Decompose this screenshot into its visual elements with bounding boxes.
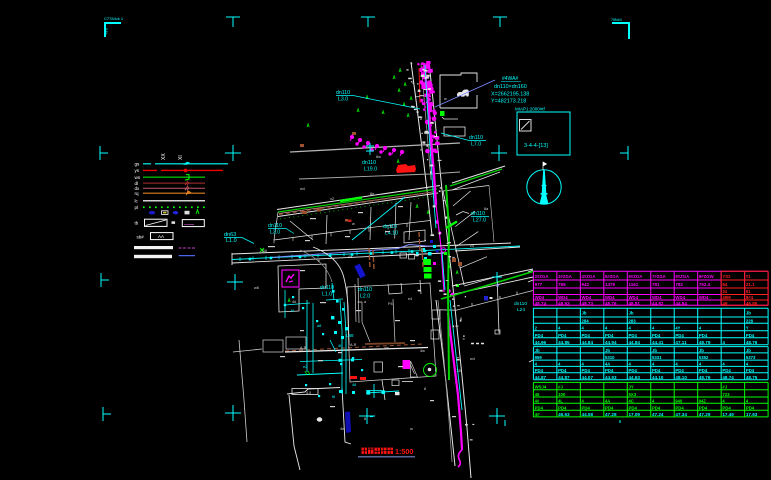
svg-text:PD4: PD4 [675, 368, 684, 373]
svg-text:48.81: 48.81 [628, 301, 640, 306]
svg-text:48.74: 48.74 [722, 375, 734, 380]
svg-text:17.49: 17.49 [722, 412, 734, 417]
svg-text:47.24: 47.24 [652, 412, 664, 417]
svg-text:Jb: Jb [746, 348, 751, 353]
svg-text:48.76: 48.76 [746, 340, 758, 345]
svg-text:PD4: PD4 [652, 333, 661, 338]
svg-text:17.63: 17.63 [746, 412, 758, 417]
svg-text:283: 283 [628, 318, 636, 323]
svg-text:PD4: PD4 [605, 406, 614, 411]
svg-text:48.93: 48.93 [558, 301, 570, 306]
svg-text:WD4: WD4 [582, 295, 592, 300]
svg-text:L3.0: L3.0 [270, 229, 280, 235]
svg-text:MIAP1:2000#tf: MIAP1:2000#tf [515, 107, 546, 112]
svg-text:w: w [444, 97, 447, 101]
svg-text:48.74: 48.74 [535, 301, 547, 306]
svg-text:765: 765 [558, 282, 566, 287]
svg-text:48.10: 48.10 [675, 375, 687, 380]
svg-text:PD4: PD4 [582, 406, 591, 411]
svg-text:17.09: 17.09 [628, 412, 640, 417]
svg-text:8w: 8w [376, 155, 381, 159]
svg-text:AA: AA [158, 234, 164, 239]
svg-text:tb: tb [135, 221, 139, 226]
svg-text:84: 84 [722, 282, 728, 287]
svg-text:4C: 4C [628, 399, 633, 404]
svg-text:#J: #J [722, 384, 727, 389]
svg-text:rq: rq [135, 191, 140, 196]
svg-text:x2: x2 [330, 197, 334, 201]
svg-text:ws: ws [135, 175, 141, 180]
svg-text:752.4: 752.4 [699, 282, 711, 287]
svg-text:8: 8 [364, 417, 366, 421]
svg-text:49: 49 [722, 301, 728, 306]
svg-text:48: 48 [352, 383, 356, 387]
svg-text:977: 977 [535, 282, 543, 287]
svg-text:Jb: Jb [652, 348, 657, 353]
svg-text:dn110: dn110 [358, 287, 372, 293]
svg-text:4L: 4L [558, 399, 563, 404]
svg-text:44.07: 44.07 [582, 375, 594, 380]
svg-text:e4: e4 [408, 297, 412, 301]
svg-text:228: 228 [746, 318, 754, 323]
svg-text:4#ZGA: 4#ZGA [582, 274, 596, 279]
svg-text:44.84: 44.84 [675, 301, 687, 306]
svg-text:XI: XI [178, 155, 184, 160]
svg-text:49M: 49M [722, 295, 731, 300]
svg-text:PD4: PD4 [722, 406, 731, 411]
svg-text:PD4: PD4 [722, 368, 731, 373]
svg-text:6#ZGA: 6#ZGA [628, 274, 642, 279]
svg-text:WSJ4: WSJ4 [535, 384, 547, 389]
svg-text:8#ZGA: 8#ZGA [675, 274, 689, 279]
svg-text:81: 81 [746, 289, 751, 294]
svg-text:1479: 1479 [605, 282, 616, 287]
svg-text:1:500: 1:500 [395, 447, 413, 456]
svg-text:WD4: WD4 [699, 295, 709, 300]
svg-text:ys: ys [135, 168, 140, 173]
svg-text:PD4: PD4 [628, 368, 637, 373]
svg-text:YS2: YS2 [722, 274, 731, 279]
svg-text:Jb: Jb [535, 348, 540, 353]
svg-text:e2: e2 [303, 365, 307, 369]
svg-text:C7784vk.1: C7784vk.1 [104, 16, 124, 21]
svg-text:#1: #1 [746, 274, 751, 279]
svg-text:47.11: 47.11 [675, 340, 687, 345]
svg-text:dn110: dn110 [320, 285, 334, 291]
svg-text:8: 8 [390, 225, 392, 229]
svg-text:Jb: Jb [605, 348, 610, 353]
svg-text:dn110: dn110 [471, 211, 485, 217]
svg-text:8: 8 [460, 317, 462, 321]
svg-text:Y=482173.218: Y=482173.218 [491, 99, 526, 105]
svg-text:dn110: dn110 [469, 135, 483, 141]
svg-text:4: 4 [722, 340, 725, 345]
svg-text:9#ZGW: 9#ZGW [699, 274, 715, 279]
svg-text:L1.0: L1.0 [322, 291, 332, 297]
svg-text:782: 782 [675, 282, 683, 287]
svg-text:47.34: 47.34 [675, 412, 687, 417]
svg-text:Jb: Jb [699, 348, 704, 353]
svg-text:w: w [352, 222, 355, 226]
svg-text:PD4: PD4 [558, 333, 567, 338]
svg-text:L19.0: L19.0 [364, 166, 377, 172]
svg-text:f4: f4 [291, 309, 294, 313]
svg-text:L2.0: L2.0 [360, 293, 370, 299]
svg-text:dn110: dn110 [268, 223, 282, 229]
svg-text:PD4: PD4 [652, 406, 661, 411]
svg-text:WD4: WD4 [628, 295, 638, 300]
svg-text:Jb: Jb [746, 311, 751, 316]
svg-text:#4WA#: #4WA# [502, 76, 518, 82]
svg-text:PD4: PD4 [675, 406, 684, 411]
svg-text:3-4-4-[13]: 3-4-4-[13] [524, 143, 548, 149]
svg-text:44.94: 44.94 [605, 340, 617, 345]
svg-text:44.41: 44.41 [652, 340, 664, 345]
svg-text:L7.0: L7.0 [471, 141, 481, 147]
svg-text:G#: G# [262, 249, 268, 253]
svg-text:PD4: PD4 [652, 368, 661, 373]
svg-text:5X3: 5X3 [628, 392, 636, 397]
svg-text:PD4: PD4 [675, 333, 684, 338]
svg-text:Jb: Jb [628, 311, 633, 316]
svg-text:WD4: WD4 [675, 295, 685, 300]
svg-text:PD4: PD4 [746, 406, 755, 411]
svg-text:PD4: PD4 [699, 406, 708, 411]
svg-text:gs: gs [135, 162, 141, 167]
svg-text:4: 4 [412, 81, 414, 85]
svg-text:4A: 4A [605, 362, 610, 367]
svg-text:8#4: 8#4 [746, 295, 754, 300]
svg-text:4w: 4w [420, 349, 425, 353]
svg-text:4Y: 4Y [675, 326, 680, 331]
svg-text:f8: f8 [332, 395, 335, 399]
svg-text:44.87: 44.87 [535, 375, 547, 380]
svg-text:A.R: A.R [350, 343, 357, 347]
svg-text:dn110: dn110 [362, 160, 376, 166]
svg-text:8: 8 [420, 117, 422, 121]
svg-text:959: 959 [535, 355, 543, 360]
svg-text:5310: 5310 [605, 355, 615, 360]
svg-text:L27.0: L27.0 [473, 217, 486, 223]
svg-text:723: 723 [722, 392, 730, 397]
svg-text:48.79: 48.79 [699, 340, 711, 345]
svg-text:44.84: 44.84 [582, 340, 594, 345]
svg-text:44.63: 44.63 [628, 375, 640, 380]
svg-text:PD4: PD4 [582, 333, 591, 338]
svg-text:WD4: WD4 [605, 295, 615, 300]
svg-text:e: e [318, 259, 320, 263]
svg-text:8: 8 [424, 387, 426, 391]
svg-text:PD4: PD4 [558, 368, 567, 373]
svg-text:4#: 4# [535, 412, 541, 417]
svg-text:44.85: 44.85 [558, 340, 570, 345]
svg-text:JY: JY [628, 384, 633, 389]
svg-text:dn110: dn110 [336, 90, 350, 96]
svg-text:a8: a8 [317, 324, 321, 328]
svg-text:ow: ow [384, 346, 389, 350]
svg-text:X=2662195.138: X=2662195.138 [491, 92, 529, 98]
svg-text:4e: 4e [340, 427, 344, 431]
svg-text:PD4: PD4 [699, 368, 708, 373]
svg-text:c4: c4 [470, 244, 474, 248]
svg-text:4A: 4A [605, 399, 610, 404]
svg-text:48.73: 48.73 [582, 301, 594, 306]
svg-text:100: 100 [558, 392, 566, 397]
svg-text:XX: XX [161, 153, 167, 160]
svg-text:WD4: WD4 [652, 295, 662, 300]
svg-text:84k: 84k [104, 28, 109, 34]
svg-text:WD4: WD4 [558, 295, 568, 300]
svg-text:PD4: PD4 [746, 368, 755, 373]
svg-text:PD4: PD4 [628, 406, 637, 411]
svg-text:44.96: 44.96 [535, 340, 547, 345]
svg-text:44.10: 44.10 [652, 375, 664, 380]
svg-text:w4: w4 [470, 357, 475, 361]
svg-text:5373: 5373 [746, 355, 756, 360]
svg-text:940: 940 [675, 399, 683, 404]
svg-text:PD4: PD4 [628, 333, 637, 338]
svg-text:PD4: PD4 [535, 368, 544, 373]
svg-text:PD4: PD4 [535, 406, 544, 411]
svg-text:47.28: 47.28 [605, 412, 617, 417]
svg-text:48.76: 48.76 [605, 301, 617, 306]
svg-text:5331: 5331 [652, 355, 662, 360]
svg-text:21.1: 21.1 [746, 282, 755, 287]
svg-text:94Z: 94Z [699, 399, 707, 404]
svg-text:47.29: 47.29 [699, 412, 711, 417]
svg-text:Y: Y [746, 326, 749, 331]
svg-text:dn110×dn160: dn110×dn160 [494, 84, 527, 90]
svg-text:791: 791 [652, 282, 660, 287]
svg-text:44.84: 44.84 [628, 340, 640, 345]
svg-text:3#ZGA: 3#ZGA [558, 274, 572, 279]
svg-text:L3.0: L3.0 [338, 96, 348, 102]
svg-text:w4: w4 [300, 187, 305, 191]
svg-text:PD4: PD4 [605, 333, 614, 338]
svg-text:pl: pl [135, 205, 139, 210]
svg-text:w: w [410, 427, 413, 431]
svg-text:dn110: dn110 [514, 301, 527, 307]
svg-text:WD4: WD4 [535, 295, 545, 300]
svg-text:w8: w8 [254, 286, 259, 290]
svg-text:4#: 4# [535, 399, 540, 404]
svg-text:2#ZGA: 2#ZGA [535, 274, 549, 279]
svg-text:48.75: 48.75 [746, 375, 758, 380]
svg-text:PD4: PD4 [605, 368, 614, 373]
svg-text:Jb: Jb [582, 311, 587, 316]
svg-text:46.85: 46.85 [746, 301, 758, 306]
svg-text:L88: L88 [346, 333, 354, 338]
svg-text:46.63: 46.63 [558, 412, 570, 417]
svg-text:34: 34 [722, 289, 727, 294]
svg-text:284: 284 [582, 318, 590, 323]
svg-text:A.R: A.R [300, 346, 307, 350]
svg-text:7#ZGA: 7#ZGA [652, 274, 666, 279]
svg-text:PD4: PD4 [558, 406, 567, 411]
svg-text:45: 45 [535, 392, 540, 397]
svg-text:44.58: 44.58 [582, 412, 594, 417]
svg-text:5352: 5352 [699, 355, 709, 360]
svg-text:44.82: 44.82 [652, 301, 664, 306]
svg-text:P4: P4 [388, 302, 393, 306]
svg-text:1161: 1161 [628, 282, 638, 287]
svg-text:L24: L24 [517, 307, 525, 313]
svg-text:PD4: PD4 [582, 368, 591, 373]
svg-text:78M#4: 78M#4 [611, 18, 622, 22]
svg-text:PD4: PD4 [699, 333, 708, 338]
svg-text:L1.0: L1.0 [226, 238, 237, 244]
svg-text:44.87: 44.87 [558, 375, 570, 380]
svg-text:5#ZGA: 5#ZGA [605, 274, 619, 279]
svg-text:PD4: PD4 [746, 333, 755, 338]
svg-text:#J: #J [558, 384, 563, 389]
svg-text:4.5: 4.5 [306, 391, 311, 395]
svg-text:PD4: PD4 [535, 333, 544, 338]
svg-text:sb#: sb# [137, 234, 145, 239]
svg-text:48.76: 48.76 [699, 375, 711, 380]
svg-text:44.93: 44.93 [605, 375, 617, 380]
svg-text:942: 942 [582, 282, 590, 287]
svg-text:8e: 8e [370, 192, 374, 196]
